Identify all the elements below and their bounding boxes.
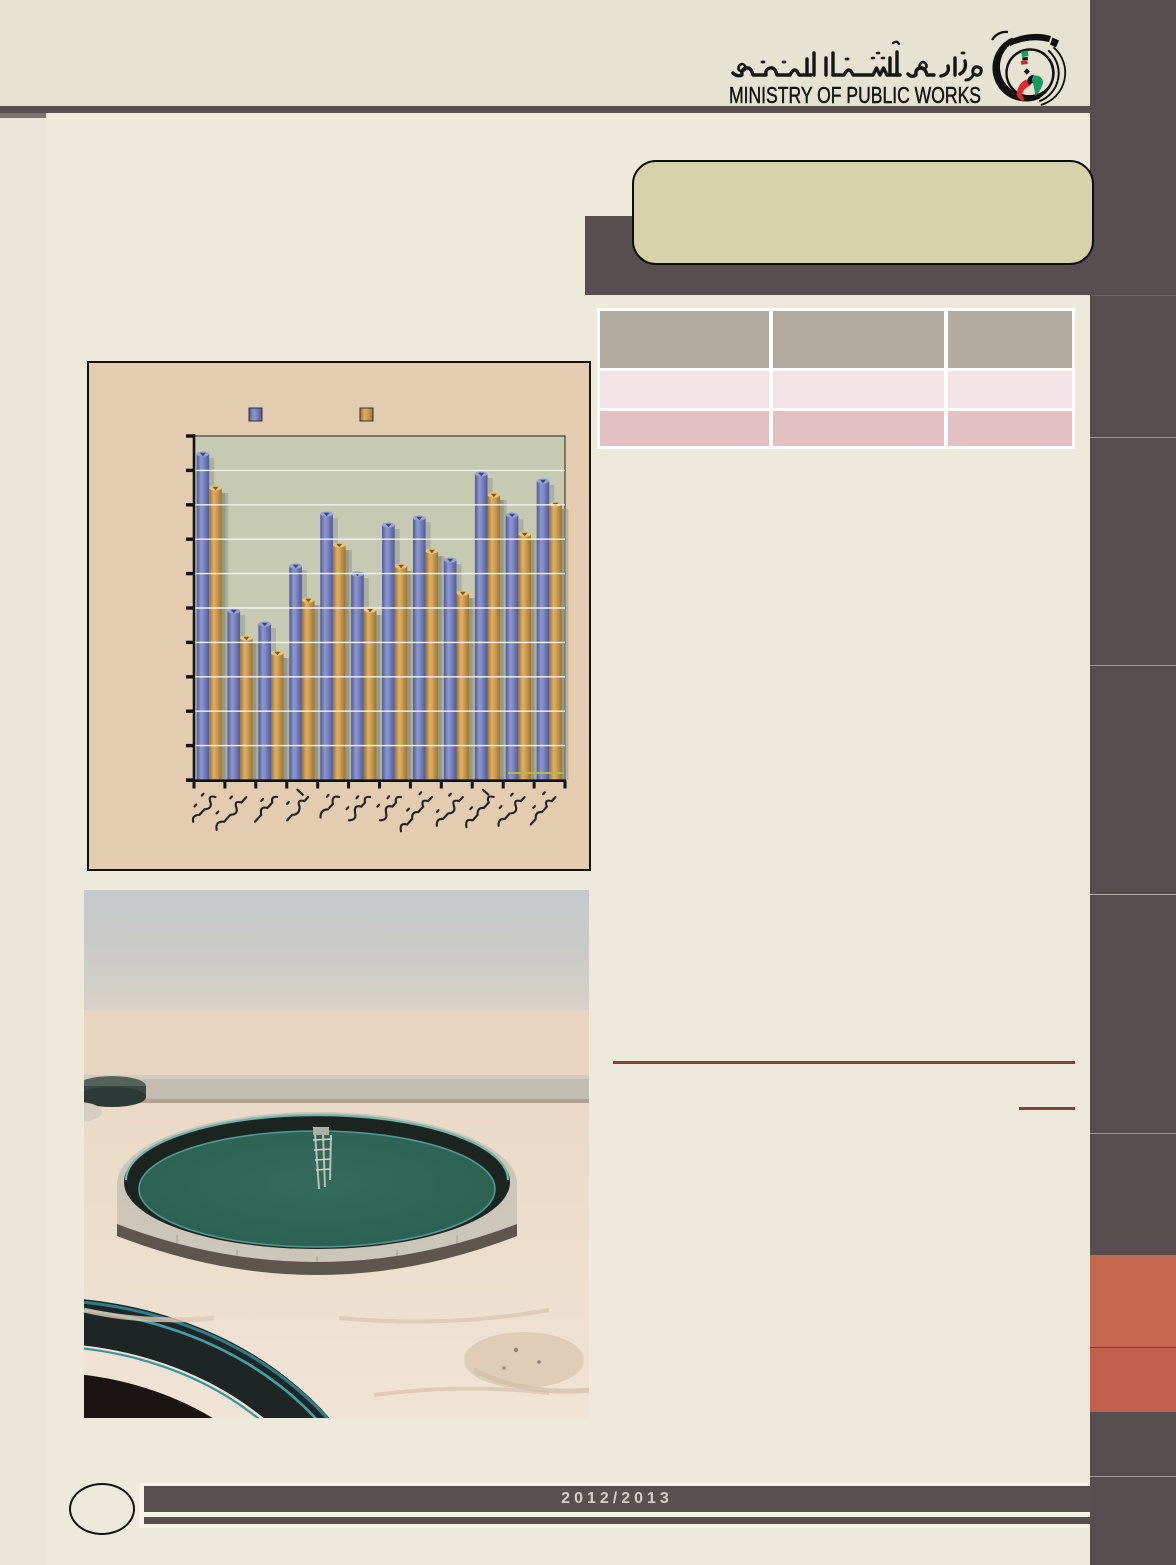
svg-text:MINISTRY OF PUBLIC WORKS: MINISTRY OF PUBLIC WORKS bbox=[729, 82, 981, 108]
